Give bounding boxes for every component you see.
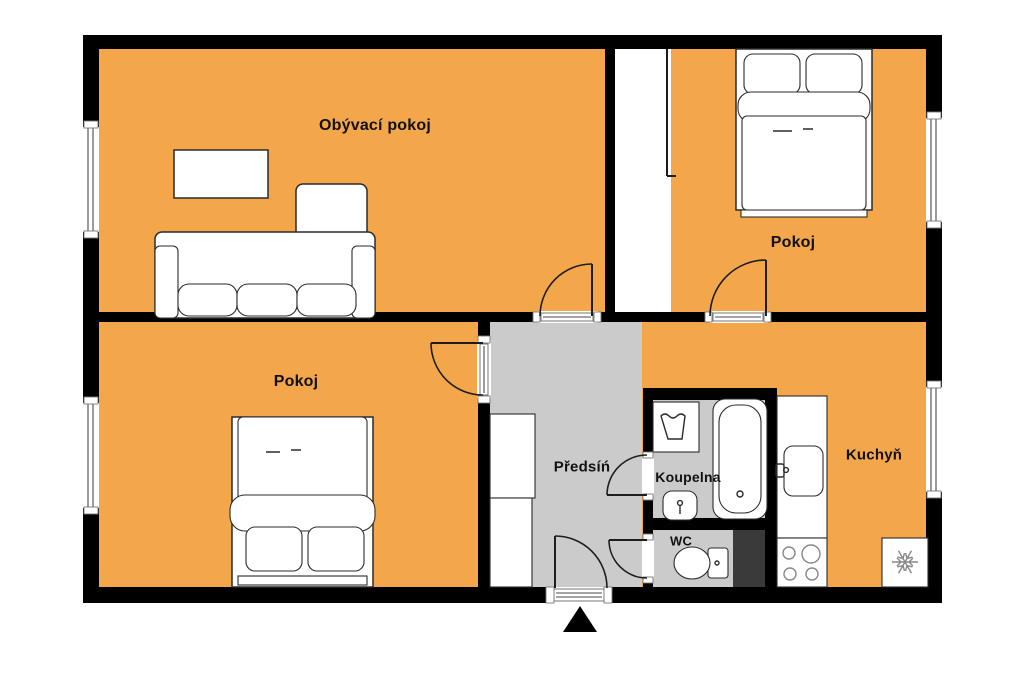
ventilation-shaft	[733, 530, 765, 587]
wall-closet-left	[605, 49, 615, 312]
wall-bottom	[83, 587, 942, 603]
hallway-wardrobe	[490, 498, 532, 587]
window-kitchen	[926, 381, 942, 498]
blanket	[742, 116, 866, 210]
pillow	[806, 54, 862, 94]
label-living-room: Obývací pokoj	[319, 117, 431, 135]
double-bed-bottom	[230, 417, 375, 587]
label-wc: WC	[670, 534, 692, 549]
bathtub	[713, 399, 767, 519]
wall-left	[83, 35, 99, 603]
bed-footboard	[238, 576, 367, 585]
washbasin	[663, 491, 697, 520]
stove	[777, 538, 827, 587]
fridge	[882, 538, 928, 587]
sofa-cushion	[297, 284, 356, 316]
bed-footboard	[741, 210, 867, 217]
washing-machine	[653, 402, 699, 452]
pillow	[744, 54, 800, 94]
bedroom-top-right-furniture	[736, 49, 872, 217]
label-bedroom-top-right: Pokoj	[771, 234, 816, 252]
double-bed-top	[736, 49, 872, 217]
bedroom-bottom-left-furniture	[230, 417, 375, 587]
floor-plan: Obývací pokoj Pokoj Pokoj Předsíń Koupel…	[0, 0, 1024, 683]
entrance-arrow	[563, 606, 597, 632]
floor-plan-drawing	[0, 0, 1024, 683]
blanket-fold	[230, 495, 375, 531]
sofa-armrest-left	[155, 246, 178, 318]
wall-top	[83, 35, 942, 49]
toilet	[674, 547, 728, 579]
window-bedroom-top-right	[926, 112, 942, 228]
pillow	[246, 527, 302, 571]
coffee-table	[174, 150, 268, 198]
window-bedroom-bottom-left	[83, 397, 99, 514]
label-kitchen: Kuchyň	[846, 447, 902, 464]
wall-bathroom-top	[643, 388, 775, 400]
window-living-room	[83, 121, 99, 238]
label-hallway: Předsíń	[554, 459, 610, 476]
sofa-cushion	[237, 284, 297, 316]
label-bedroom-bottom-left: Pokoj	[274, 373, 319, 391]
hallway-furniture	[490, 414, 535, 587]
hallway-wardrobe	[490, 414, 535, 498]
pillow	[308, 527, 364, 571]
label-bathroom: Koupelna	[655, 469, 720, 485]
built-in-closet	[615, 49, 671, 312]
wall-bathroom-wc-divider	[643, 518, 775, 530]
sofa-cushion	[178, 284, 237, 316]
